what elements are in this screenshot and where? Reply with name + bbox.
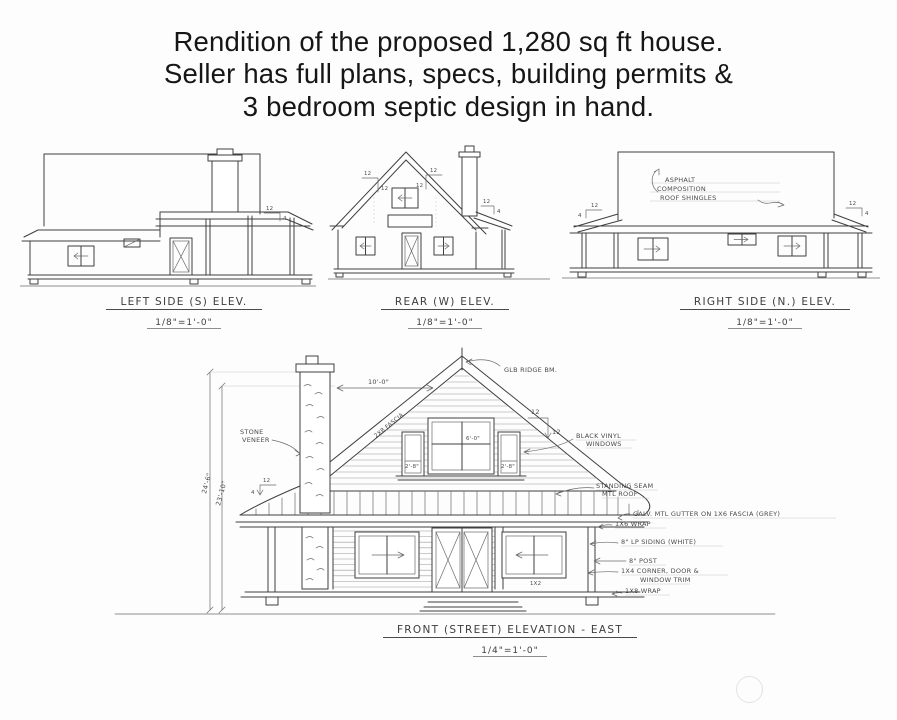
window-trim-note: 1X2 (530, 581, 541, 587)
slope-marker-gable: 12 12 (528, 408, 561, 438)
slope-marker-porch: 12 4 (481, 199, 501, 215)
callout-vinyl-line-1: BLACK VINYL (576, 432, 621, 440)
left-side-caption: LEFT SIDE (S) ELEV. 1/8"=1'-0" (36, 290, 332, 329)
slope-run: 12 (483, 199, 490, 205)
callout-post-text: 8" POST (629, 557, 657, 565)
elevation-scale: 1/4"=1'-0" (473, 646, 546, 657)
title-line-1: Rendition of the proposed 1,280 sq ft ho… (0, 26, 897, 58)
slope-rise: 4 (865, 211, 869, 217)
slope-rise: 4 (497, 209, 501, 215)
elevation-scale: 1/8"=1'-0" (147, 318, 220, 329)
dim-attic-center: 6'-0" (466, 436, 480, 442)
dim-height-a: 24'-6" (200, 472, 213, 494)
rear-elevation: 12 12 12 12 (328, 142, 550, 320)
right-side-caption: RIGHT SIDE (N.) ELEV. 1/8"=1'-0" (606, 290, 897, 329)
title-line-2: Seller has full plans, specs, building p… (0, 58, 897, 90)
rear-caption: REAR (W) ELEV. 1/8"=1'-0" (334, 290, 556, 329)
callout-trim-line-1: 1X4 CORNER, DOOR & (621, 567, 699, 575)
roof (570, 152, 872, 233)
front-caption: FRONT (STREET) ELEVATION - EAST 1/4"=1'-… (310, 618, 710, 657)
elevation-label: REAR (W) ELEV. (381, 296, 509, 310)
slope-run: 12 (591, 203, 598, 209)
callout-wrap8-text: 1X8 WRAP (625, 587, 661, 595)
roof-note-line-3: ROOF SHINGLES (660, 194, 717, 202)
chimney (459, 146, 480, 216)
posts-and-walls (582, 233, 862, 268)
callout-gutter-text: GALV. MTL GUTTER ON 1X6 FASCIA (GREY) (633, 510, 780, 518)
dim-width-top: 10'-0" (368, 378, 389, 386)
slope-marker-porch: 12 4 (251, 478, 276, 496)
slope-run: 12 (430, 168, 437, 174)
eave-gutter (236, 515, 648, 527)
stone-veneer-callout: STONE VENEER (240, 428, 300, 456)
front-elevation: 24'-6" 23'-10" 10'-0" 2X8 FASCIA (110, 342, 895, 658)
porch-posts (156, 216, 310, 275)
dim-attic-side-right: 2'-8" (501, 464, 515, 470)
callout-post: 8" POST (594, 557, 666, 565)
right-side-elevation: ASPHALT COMPOSITION ROOF SHINGLES 12 4 1… (562, 142, 880, 320)
callout-seam-line-1: STANDING SEAM (596, 482, 653, 490)
slope-marker-porch: 12 4 (264, 206, 287, 222)
left-side-elevation: 12 4 LEFT SIDE (S) ELEV. 1/8"=1'-0" (20, 142, 316, 320)
drawing-sheet: Rendition of the proposed 1,280 sq ft ho… (0, 0, 897, 720)
left-side-drawing: 12 4 (20, 142, 316, 290)
callout-ridge: GLB RIDGE BM. (504, 366, 557, 374)
page-title: Rendition of the proposed 1,280 sq ft ho… (0, 26, 897, 123)
dimension-top-width: 10'-0" (337, 378, 433, 391)
elevation-label: LEFT SIDE (S) ELEV. (106, 296, 261, 310)
walls (30, 238, 192, 275)
callout-stone-line-1: STONE (240, 428, 263, 436)
roof-note-line-2: COMPOSITION (657, 185, 706, 193)
deck-and-ground (115, 592, 775, 614)
slope-marker-right-porch: 12 4 (846, 201, 869, 217)
callout-trim: 1X4 CORNER, DOOR & WINDOW TRIM (588, 567, 728, 584)
callout-lp-siding: 8" LP SIDING (WHITE) (590, 538, 723, 546)
base (562, 268, 880, 278)
slope-rise: 4 (578, 213, 582, 219)
callout-ridge-beam: GLB RIDGE BM. (466, 359, 557, 374)
callout-vinyl-line-2: WINDOWS (586, 440, 622, 448)
elevation-scale: 1/8"=1'-0" (408, 318, 481, 329)
main-floor: 1X2 (265, 527, 598, 592)
attic-window (392, 188, 418, 208)
slope-marker-right: 12 12 (416, 168, 442, 189)
rear-drawing: 12 12 12 12 (328, 142, 550, 290)
rake-note: 2X8 FASCIA (373, 412, 405, 439)
callout-stone-line-2: VENEER (242, 436, 270, 444)
dim-height-b: 23'-10" (214, 480, 228, 507)
base (20, 275, 316, 286)
slope-run: 12 (531, 408, 540, 416)
callout-trim-line-2: WINDOW TRIM (640, 576, 691, 584)
lean-to-porch (474, 212, 512, 268)
roof-note-line-1: ASPHALT (665, 176, 695, 184)
callout-siding-text: 8" LP SIDING (WHITE) (621, 538, 696, 546)
roof-note: ASPHALT COMPOSITION ROOF SHINGLES (652, 169, 784, 207)
chimney (208, 149, 242, 212)
slope-run: 12 (849, 201, 856, 207)
slope-run: 12 (266, 206, 273, 212)
front-drawing: 24'-6" 23'-10" 10'-0" 2X8 FASCIA (110, 342, 895, 628)
slope-rise: 4 (283, 216, 287, 222)
elevation-label: RIGHT SIDE (N.) ELEV. (680, 296, 850, 310)
roof (22, 154, 313, 241)
callout-1x6-wrap: 1X6 WRAP (598, 520, 666, 529)
base (328, 269, 550, 279)
title-line-3: 3 bedroom septic design in hand. (0, 91, 897, 123)
slope-run: 12 (364, 171, 371, 177)
right-side-drawing: ASPHALT COMPOSITION ROOF SHINGLES 12 4 1… (562, 142, 880, 290)
elevation-label: FRONT (STREET) ELEVATION - EAST (383, 624, 637, 638)
walls (338, 215, 476, 269)
dim-attic-side-left: 2'-8" (405, 464, 419, 470)
slope-run: 12 (263, 478, 270, 484)
slope-marker-left-porch: 12 4 (578, 203, 602, 219)
watermark-circle (736, 676, 763, 703)
elevation-scale: 1/8"=1'-0" (728, 318, 801, 329)
callout-seam-line-2: MTL ROOF (602, 490, 638, 498)
chimney (296, 356, 334, 513)
attic-windows: 6'-0" 2'-8" 2'-8" (396, 418, 526, 480)
slope-rise: 4 (251, 490, 255, 496)
callout-gutter: GALV. MTL GUTTER ON 1X6 FASCIA (GREY) (618, 510, 836, 520)
callout-wrap6-text: 1X6 WRAP (615, 520, 651, 528)
slope-rise: 12 (552, 428, 561, 436)
slope-rise: 12 (381, 186, 388, 192)
